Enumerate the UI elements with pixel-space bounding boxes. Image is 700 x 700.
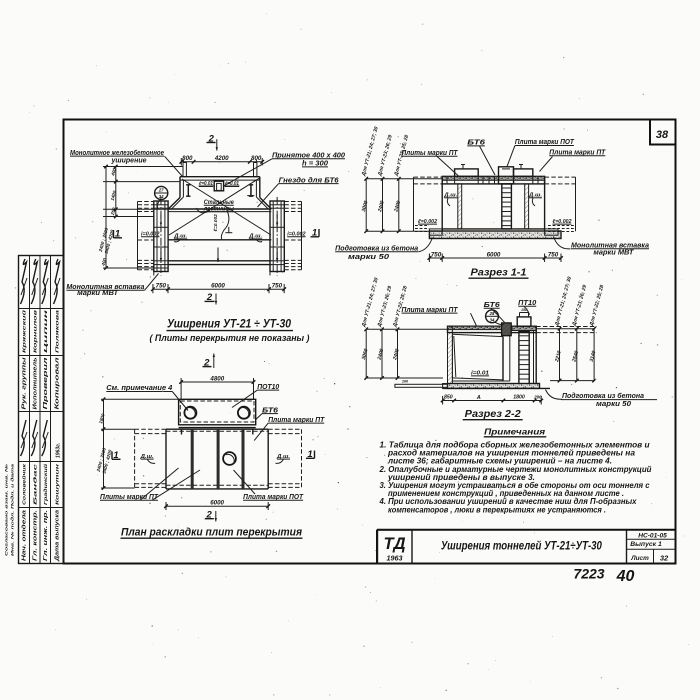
- svg-text:Градинский: Градинский: [42, 464, 48, 505]
- svg-text:200: 200: [533, 395, 542, 400]
- svg-text:Разрез 2-2: Разрез 2-2: [465, 409, 522, 420]
- svg-text:Уширения УТ-21 ÷ УТ-30: Уширения УТ-21 ÷ УТ-30: [167, 317, 291, 331]
- svg-text:4200: 4200: [214, 155, 229, 162]
- svg-text:Примечания: Примечания: [484, 427, 545, 437]
- svg-text:Кряжский: Кряжский: [21, 310, 27, 353]
- svg-text:Полякова: Полякова: [55, 309, 60, 353]
- svg-text:Ципин: Ципин: [43, 309, 48, 353]
- svg-text:750: 750: [272, 283, 283, 290]
- svg-text:850: 850: [444, 395, 453, 401]
- svg-text:40: 40: [616, 568, 635, 585]
- svg-text:Исполнитель: Исполнитель: [32, 358, 38, 410]
- svg-text:План раскладки плит перекры: План раскладки плит перекрытия: [121, 526, 302, 538]
- svg-text:Корнилов: Корнилов: [32, 309, 37, 353]
- svg-text:Разрез 1-1: Разрез 1-1: [471, 267, 527, 278]
- svg-text:750: 750: [156, 283, 167, 290]
- svg-text:34: 34: [490, 318, 495, 323]
- svg-text:Инв. № подл. Подп. и дата: Инв. № подл. Подп. и дата: [11, 464, 15, 556]
- svg-text:уширение: уширение: [110, 158, 146, 165]
- svg-text:750: 750: [431, 251, 442, 258]
- svg-text:Бандас: Бандас: [32, 463, 37, 505]
- svg-text:Выпуск 1: Выпуск 1: [630, 541, 662, 548]
- svg-text:Лист: Лист: [630, 555, 649, 562]
- svg-text:( Плиты перекрытия не показ: ( Плиты перекрытия не показаны ): [150, 333, 310, 343]
- svg-text:марки МВТ: марки МВТ: [77, 290, 119, 297]
- svg-text:34: 34: [159, 194, 164, 199]
- svg-text:НС-01-05: НС-01-05: [638, 533, 667, 540]
- svg-text:Дата выпуска: Дата выпуска: [55, 510, 61, 563]
- svg-text:1800: 1800: [513, 395, 525, 401]
- svg-text:4800: 4800: [209, 375, 224, 382]
- svg-text:ℓ=0.002: ℓ=0.002: [213, 214, 219, 232]
- svg-text:1963: 1963: [387, 554, 403, 563]
- svg-text:Соловейчик: Соловейчик: [21, 463, 27, 505]
- svg-text:марки 50: марки 50: [348, 254, 389, 261]
- svg-text:6000: 6000: [211, 283, 225, 290]
- svg-text:ТД: ТД: [384, 535, 406, 553]
- svg-text:компенсаторов , люки в пере: компенсаторов , люки в перекрытиях не ус…: [388, 505, 606, 514]
- svg-text:Копировал: Копировал: [55, 356, 61, 409]
- svg-text:27: 27: [158, 188, 164, 193]
- svg-text:Согласовано взам. инв. №: Согласовано взам. инв. №: [5, 464, 9, 556]
- svg-text:6000: 6000: [487, 251, 501, 258]
- svg-text:750: 750: [548, 251, 559, 258]
- svg-text:Рук. группы: Рук. группы: [22, 357, 28, 410]
- svg-text:Гл. инж. пр.: Гл. инж. пр.: [43, 510, 49, 561]
- svg-text:Проверил: Проверил: [43, 356, 49, 410]
- svg-text:7223: 7223: [573, 566, 604, 582]
- svg-text:100: 100: [402, 380, 409, 384]
- svg-text:А: А: [476, 395, 481, 401]
- svg-text:32: 32: [660, 554, 669, 563]
- svg-text:марки 50: марки 50: [596, 401, 631, 408]
- svg-text:Гл. констр.: Гл. констр.: [32, 510, 38, 561]
- svg-text:6000: 6000: [210, 500, 224, 507]
- svg-text:Уширения тоннелей УТ-21÷УТ-30: Уширения тоннелей УТ-21÷УТ-30: [441, 539, 602, 553]
- svg-text:38: 38: [656, 129, 669, 141]
- svg-text:Подготовка из бетона: Подготовка из бетона: [562, 392, 644, 400]
- svg-text:Кошутин: Кошутин: [55, 463, 60, 505]
- svg-text:1963г.: 1963г.: [56, 443, 62, 458]
- svg-text:Нач. отдела: Нач. отдела: [22, 510, 28, 561]
- svg-text:марки МВТ: марки МВТ: [593, 250, 634, 257]
